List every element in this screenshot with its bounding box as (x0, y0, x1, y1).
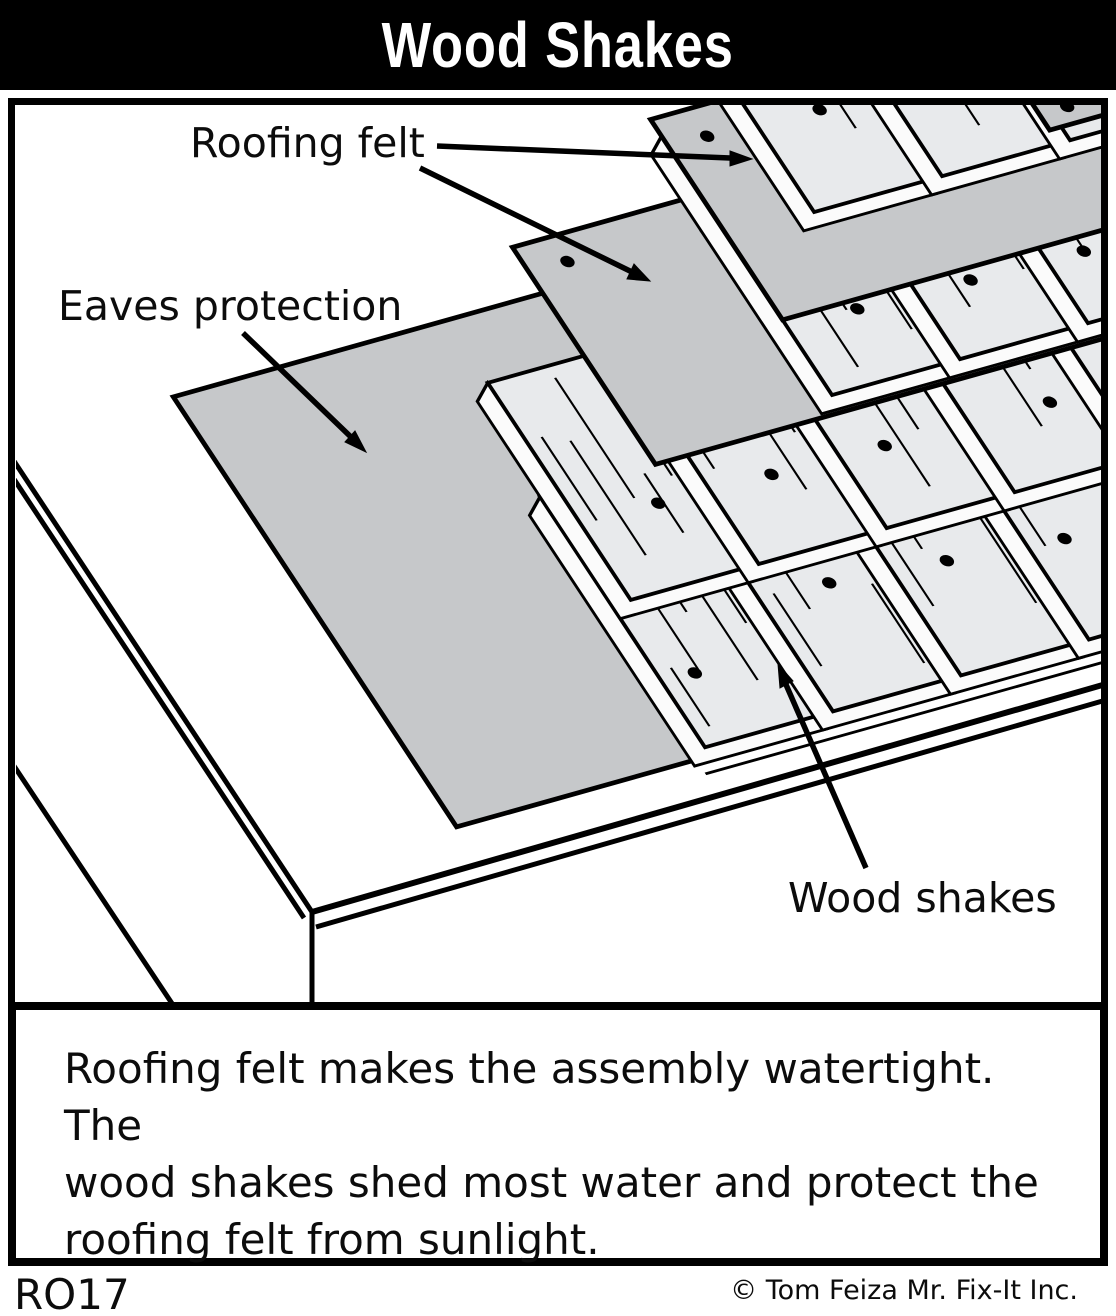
caption-line-1: Roofing felt makes the assembly watertig… (64, 1040, 1082, 1154)
page: Wood Shakes (0, 0, 1116, 1316)
page-title: Wood Shakes (382, 8, 734, 82)
caption-box: Roofing felt makes the assembly watertig… (8, 1002, 1108, 1266)
caption-line-3: roofing felt from sunlight. (64, 1211, 1082, 1268)
nail-dot (925, 90, 945, 91)
grain-line (665, 90, 753, 91)
roof-illustration: Roofing felt Eaves protection Wood shake… (0, 90, 1116, 1012)
grain-line (1109, 523, 1116, 600)
label-wood-shakes: Wood shakes (788, 874, 1057, 922)
label-eaves-protection: Eaves protection (58, 282, 402, 330)
label-roofing-felt: Roofing felt (190, 119, 425, 167)
title-bar: Wood Shakes (0, 0, 1116, 90)
caption-line-2: wood shakes shed most water and protect … (64, 1154, 1082, 1211)
figure-code: RO17 (14, 1270, 130, 1316)
copyright-credit: © Tom Feiza Mr. Fix-It Inc. (64, 1274, 1082, 1308)
